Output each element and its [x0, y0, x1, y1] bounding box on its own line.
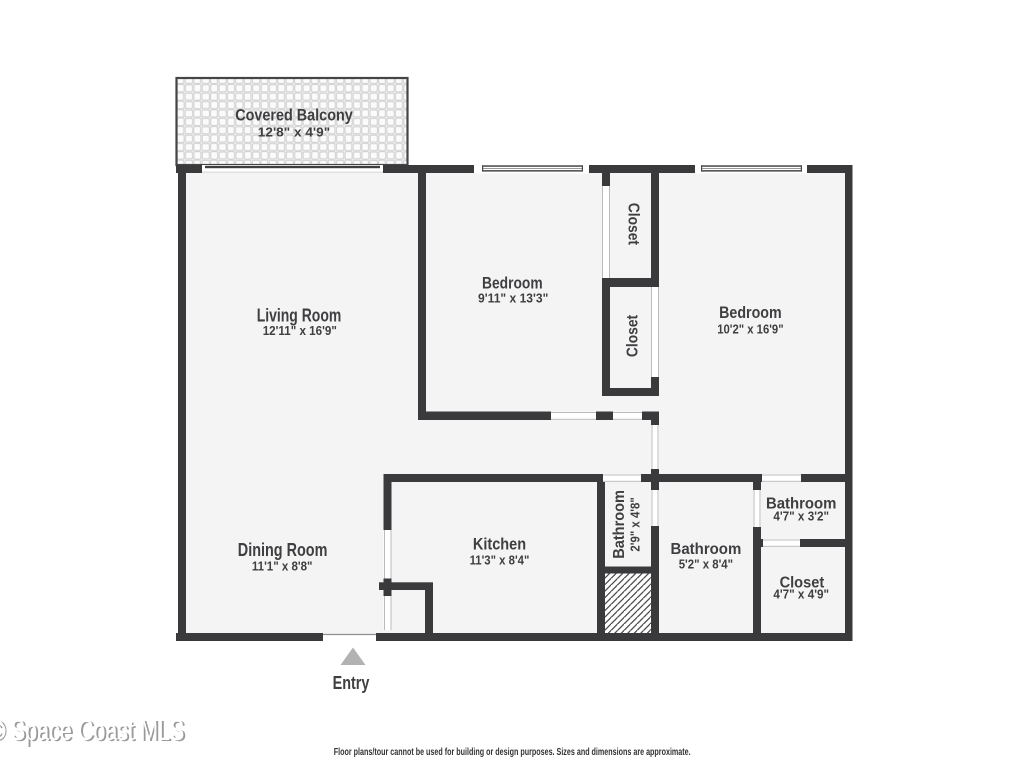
svg-text:2'9" x 4'8": 2'9" x 4'8" [629, 497, 643, 551]
svg-text:Closet: Closet [625, 315, 642, 357]
svg-text:11'1" x 8'8": 11'1" x 8'8" [252, 559, 313, 574]
svg-text:Bathroom: Bathroom [671, 541, 742, 558]
svg-text:Entry: Entry [333, 673, 370, 693]
svg-text:Bedroom: Bedroom [719, 303, 782, 322]
svg-text:5'2" x 8'4": 5'2" x 8'4" [679, 557, 733, 571]
svg-text:11'3" x 8'4": 11'3" x 8'4" [470, 553, 530, 568]
svg-text:12'11" x 16'9": 12'11" x 16'9" [263, 323, 337, 338]
svg-text:10'2" x 16'9": 10'2" x 16'9" [717, 322, 783, 337]
svg-text:12'8" x 4'9": 12'8" x 4'9" [258, 125, 330, 140]
svg-text:Kitchen: Kitchen [473, 535, 526, 554]
svg-text:4'7" x 4'9": 4'7" x 4'9" [773, 588, 829, 602]
svg-text:Closet: Closet [625, 203, 642, 245]
svg-text:4'7" x 3'2": 4'7" x 3'2" [773, 510, 829, 524]
svg-text:9'11" x 13'3": 9'11" x 13'3" [478, 290, 548, 305]
svg-text:Covered Balcony: Covered Balcony [235, 106, 353, 125]
svg-text:Bathroom: Bathroom [611, 490, 628, 559]
svg-text:Dining Room: Dining Room [238, 540, 328, 560]
